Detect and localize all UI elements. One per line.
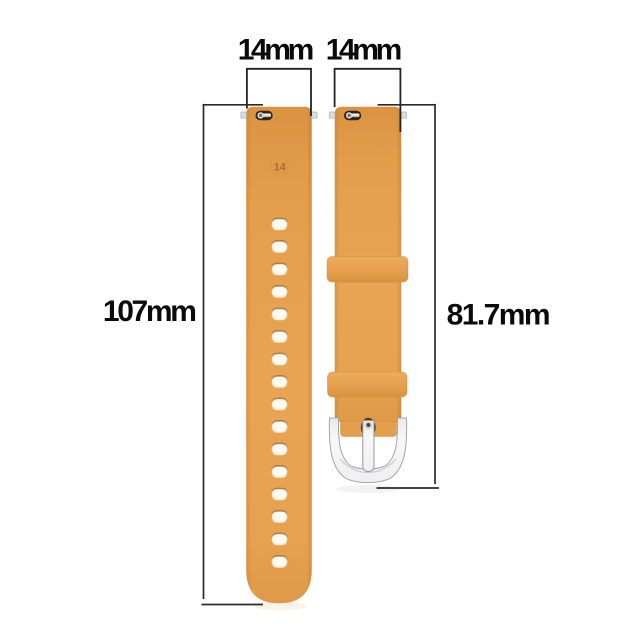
svg-text:107mm: 107mm bbox=[103, 295, 197, 328]
svg-text:14mm: 14mm bbox=[326, 34, 403, 67]
svg-text:81.7mm: 81.7mm bbox=[447, 299, 551, 332]
svg-text:14mm: 14mm bbox=[238, 34, 315, 67]
svg-text:14: 14 bbox=[274, 162, 287, 174]
